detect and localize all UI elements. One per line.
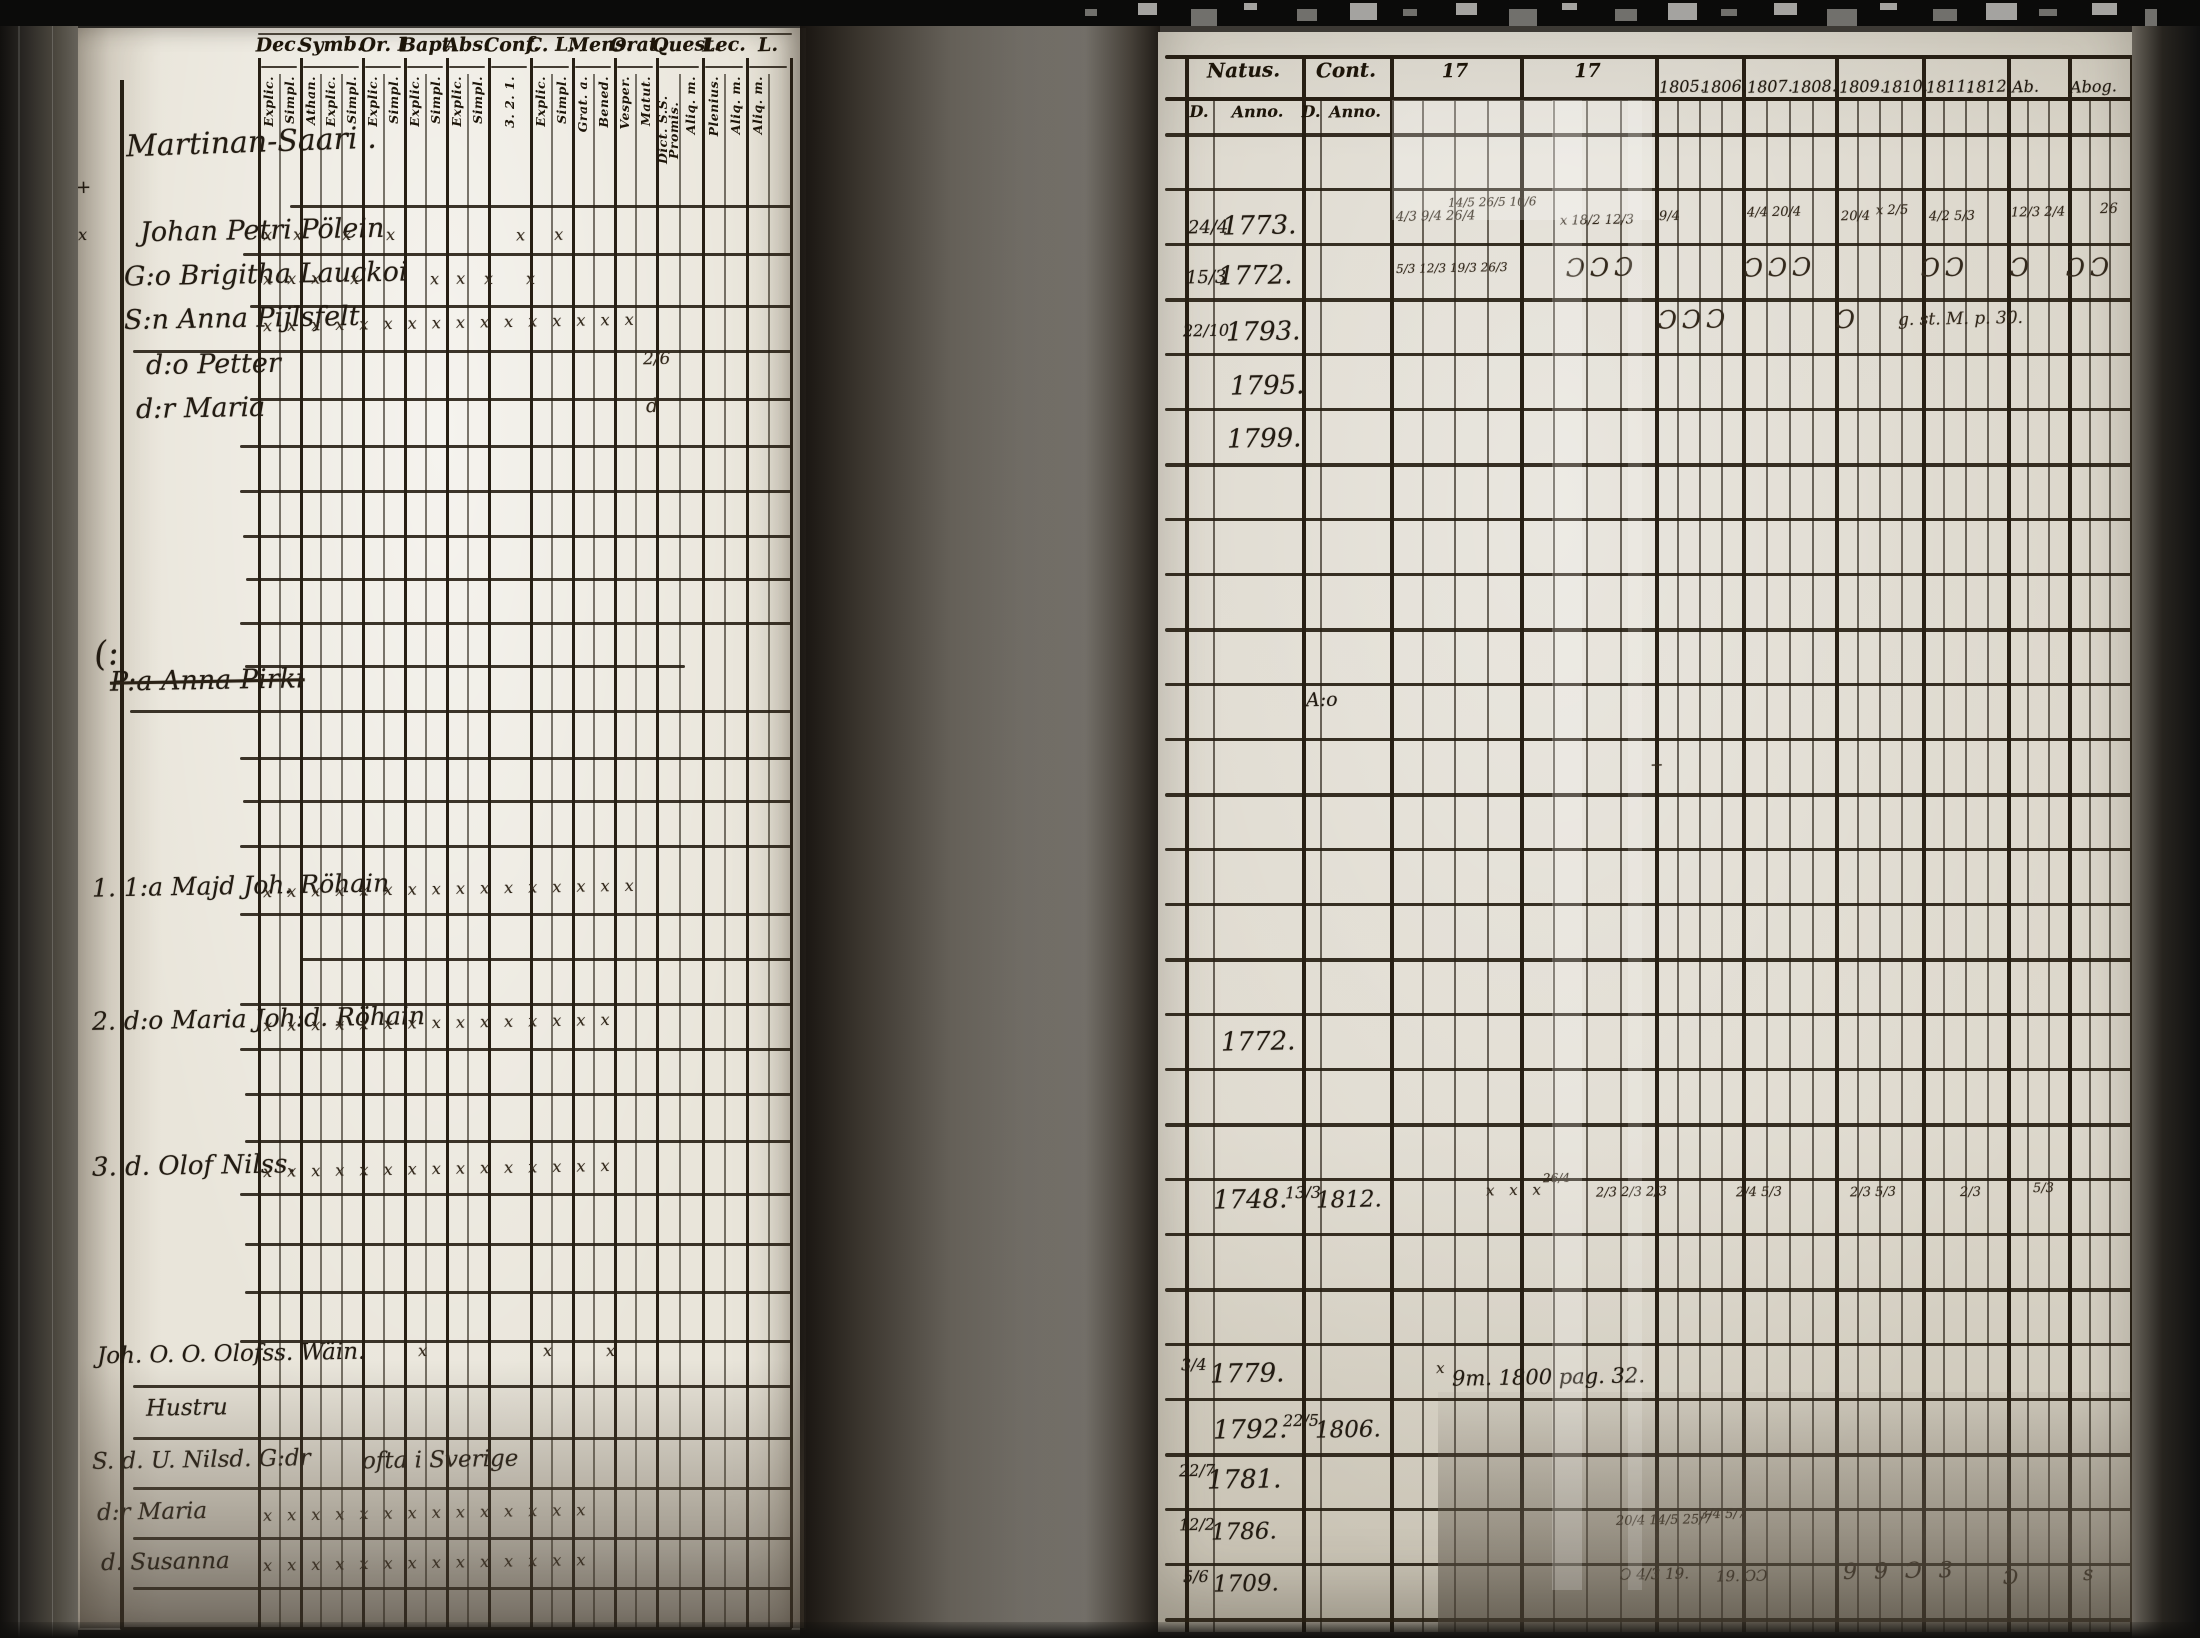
film-top-bar xyxy=(0,0,2200,26)
page-gutter xyxy=(800,0,1160,1638)
film-edge-mark xyxy=(1933,9,1957,21)
film-edge-mark xyxy=(2145,9,2157,26)
film-edge-mark xyxy=(1191,9,1217,26)
film-edge-left xyxy=(0,0,78,1638)
film-edge-mark xyxy=(1721,9,1737,16)
film-bottom-bar xyxy=(0,1622,2200,1638)
film-scratch-2 xyxy=(52,0,53,1638)
film-edge-mark xyxy=(1085,9,1097,16)
film-edge-mark xyxy=(2092,3,2117,15)
film-edge-right xyxy=(2132,0,2200,1638)
film-edge-mark xyxy=(1615,9,1637,21)
film-edge-mark xyxy=(1138,3,1157,15)
film-edge-mark xyxy=(1827,9,1857,26)
film-edge-mark xyxy=(1244,3,1257,10)
film-scratch-1 xyxy=(18,0,20,1638)
film-edge-mark xyxy=(1880,3,1897,10)
microfilm-scan: 72 Martinan-Saari . Dec.Explic.Simpl.Sym… xyxy=(0,0,2200,1638)
left-page xyxy=(76,28,806,1630)
film-edge-mark xyxy=(1403,9,1417,16)
film-edge-mark xyxy=(1509,9,1537,26)
film-edge-mark xyxy=(1297,9,1317,21)
film-edge-mark xyxy=(1774,3,1797,15)
film-edge-mark xyxy=(2039,9,2057,16)
film-edge-mark xyxy=(1456,3,1477,15)
right-page xyxy=(1158,32,2134,1632)
film-edge-mark xyxy=(1350,3,1377,20)
film-edge-mark xyxy=(1562,3,1577,10)
film-edge-mark xyxy=(1668,3,1697,20)
film-edge-mark xyxy=(1986,3,2017,20)
